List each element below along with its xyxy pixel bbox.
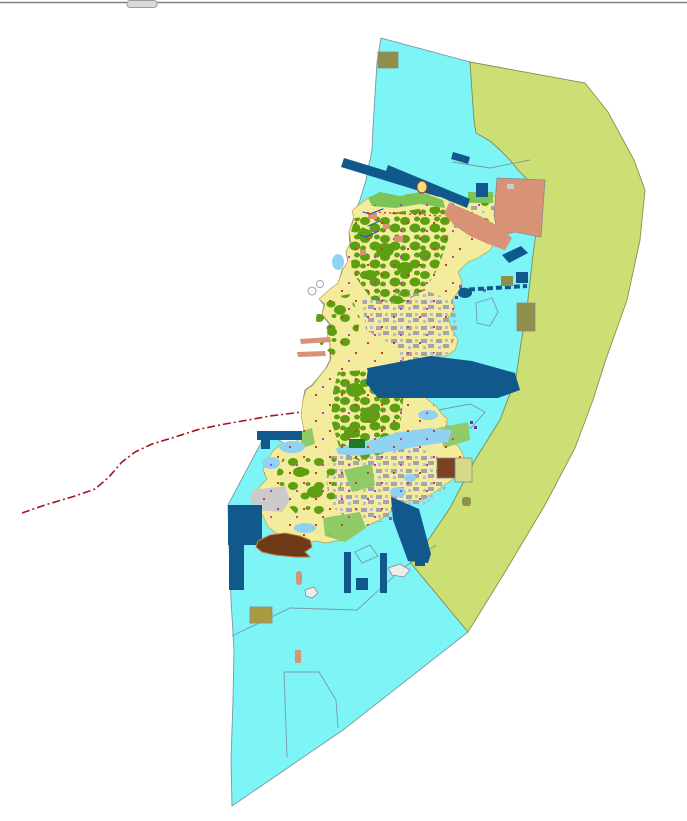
- quay-stub-south: [415, 558, 425, 566]
- pier-head: [458, 288, 472, 298]
- facility-rect-north[interactable]: [378, 52, 398, 68]
- facility-brown-rect[interactable]: [437, 458, 455, 478]
- dock-bar-west: [229, 545, 244, 590]
- salmon-bar-south: [295, 650, 301, 663]
- islet-ring-1: [308, 287, 316, 295]
- breakwater-stub-northwest: [261, 440, 270, 449]
- facility-rect-east-small: [501, 276, 513, 286]
- facility-khaki-quad: [455, 458, 472, 482]
- islet-ring-2: [317, 281, 324, 288]
- salmon-pill-south: [296, 571, 302, 585]
- facility-rect-east-large[interactable]: [517, 303, 535, 331]
- map-viewport: [0, 0, 687, 821]
- pier-bar-south-1: [344, 552, 351, 593]
- facility-dot-southeast: [462, 497, 471, 506]
- reclamation-detail: [507, 184, 514, 189]
- dock-block-west[interactable]: [228, 505, 262, 545]
- islet-yellow[interactable]: [417, 181, 427, 193]
- pier-bar-south-2: [380, 553, 387, 593]
- map-canvas[interactable]: [0, 0, 687, 821]
- top-splitter-handle[interactable]: [127, 1, 157, 8]
- reclamation-block[interactable]: [494, 178, 545, 237]
- quay-square-south: [356, 578, 368, 590]
- window-top-edge: [0, 1, 687, 8]
- quay-rect-northeast: [476, 183, 488, 197]
- facility-rect-southwest[interactable]: [250, 607, 272, 623]
- dark-green-plot: [349, 439, 365, 448]
- breakwater-bar-northwest: [257, 431, 302, 440]
- quay-rect-east: [516, 272, 528, 283]
